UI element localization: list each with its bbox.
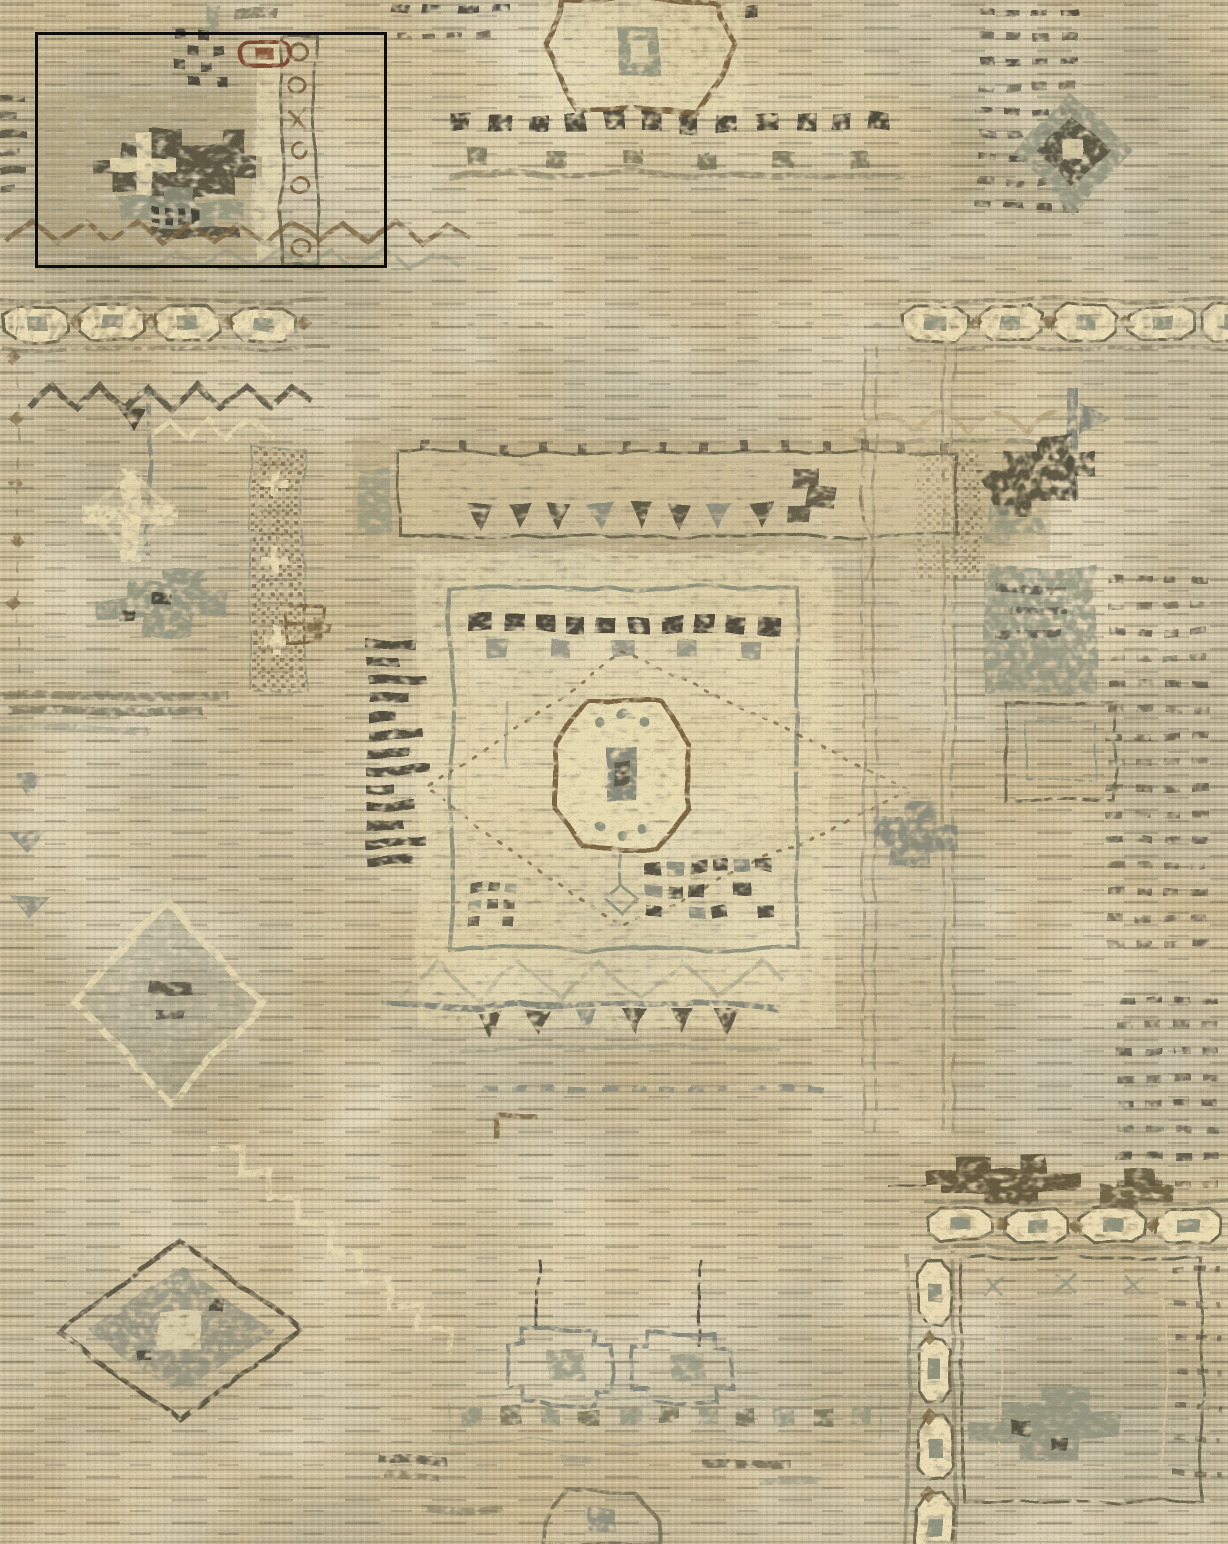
rug-photo: [0, 0, 1228, 1544]
light-fiber-grain: [0, 0, 1228, 1544]
rug-texture: [0, 0, 1228, 1544]
